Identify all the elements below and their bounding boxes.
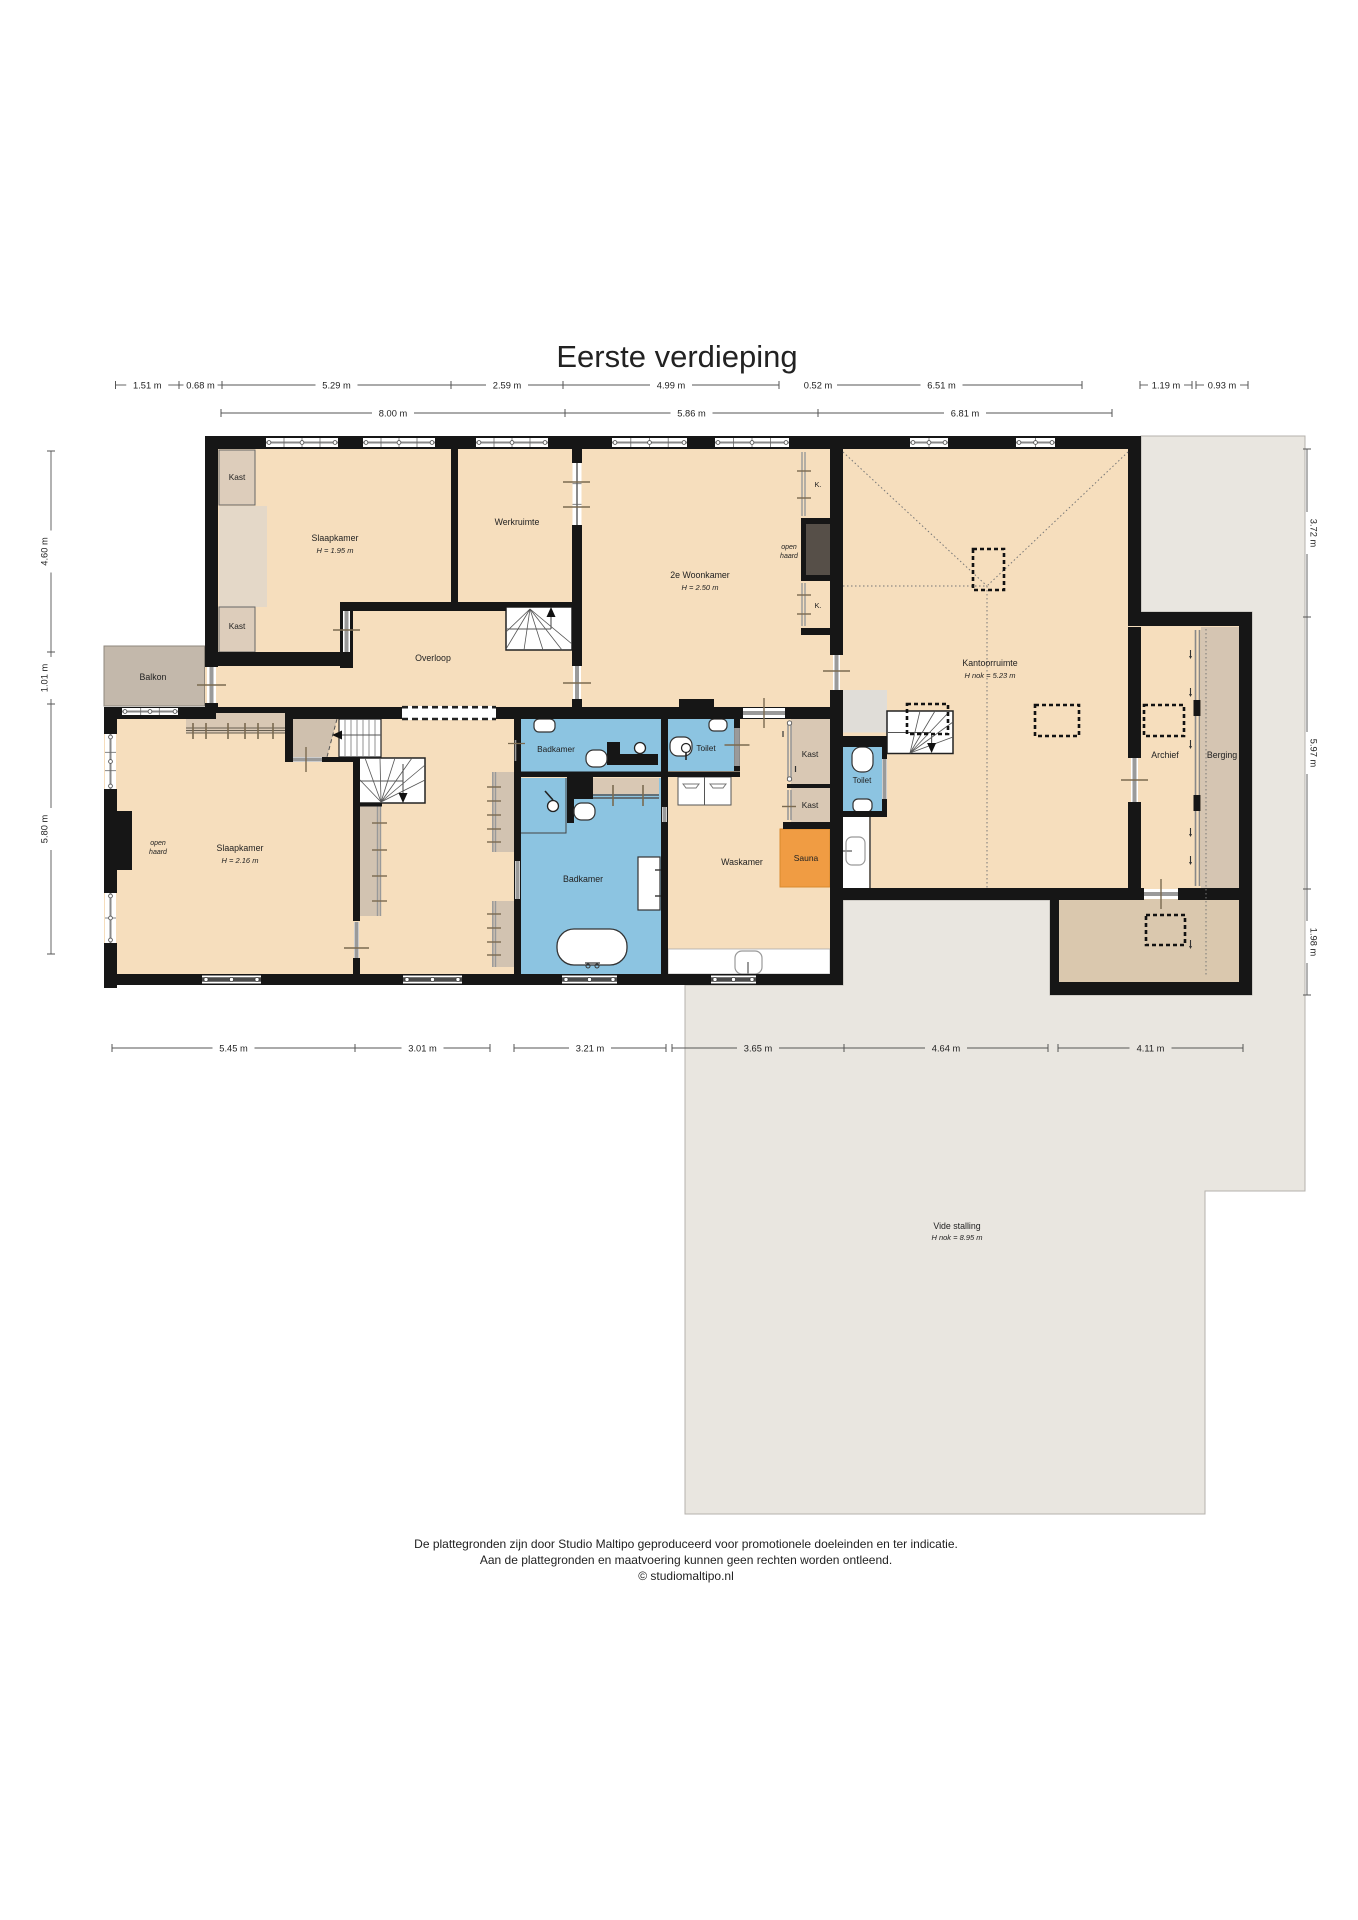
svg-text:Aan de plattegronden en maatvo: Aan de plattegronden en maatvoering kunn… <box>480 1553 892 1567</box>
svg-text:Slaapkamer: Slaapkamer <box>217 843 264 853</box>
svg-text:Kast: Kast <box>802 749 819 759</box>
svg-text:0.52 m: 0.52 m <box>804 380 833 390</box>
svg-text:K.: K. <box>814 480 821 489</box>
svg-text:6.51 m: 6.51 m <box>927 380 956 390</box>
svg-text:1.19 m: 1.19 m <box>1152 380 1181 390</box>
svg-text:Balkon: Balkon <box>140 672 167 682</box>
svg-text:1.01 m: 1.01 m <box>39 664 49 693</box>
svg-text:1.98 m: 1.98 m <box>1309 928 1319 957</box>
svg-text:Kast: Kast <box>229 621 246 631</box>
svg-text:8.00 m: 8.00 m <box>379 408 408 418</box>
svg-text:Waskamer: Waskamer <box>721 857 763 867</box>
svg-text:6.81 m: 6.81 m <box>951 408 980 418</box>
svg-text:Overloop: Overloop <box>415 653 451 663</box>
svg-text:2.59 m: 2.59 m <box>493 380 522 390</box>
svg-text:Badkamer: Badkamer <box>563 874 603 884</box>
svg-text:5.97 m: 5.97 m <box>1309 739 1319 768</box>
svg-text:haard: haard <box>149 849 168 856</box>
svg-text:K.: K. <box>814 601 821 610</box>
svg-text:Sauna: Sauna <box>794 853 819 863</box>
svg-text:Kantoorruimte: Kantoorruimte <box>962 658 1017 668</box>
svg-text:haard: haard <box>780 553 799 560</box>
svg-text:4.11 m: 4.11 m <box>1137 1043 1165 1053</box>
svg-text:4.64 m: 4.64 m <box>932 1043 961 1053</box>
svg-text:H = 2.50 m: H = 2.50 m <box>682 583 719 592</box>
svg-text:3.72 m: 3.72 m <box>1309 519 1319 548</box>
svg-text:Slaapkamer: Slaapkamer <box>312 533 359 543</box>
svg-text:4.99 m: 4.99 m <box>657 380 686 390</box>
svg-text:0.93 m: 0.93 m <box>1208 380 1237 390</box>
svg-text:De plattegronden zijn door Stu: De plattegronden zijn door Studio Maltip… <box>414 1537 958 1551</box>
svg-text:Archief: Archief <box>1151 750 1179 760</box>
svg-text:Vide stalling: Vide stalling <box>933 1221 980 1231</box>
svg-text:H = 2.16 m: H = 2.16 m <box>222 856 259 865</box>
svg-text:3.21 m: 3.21 m <box>576 1043 605 1053</box>
svg-text:Toilet: Toilet <box>853 776 872 785</box>
svg-text:H nok = 5.23 m: H nok = 5.23 m <box>964 671 1015 680</box>
svg-text:3.01 m: 3.01 m <box>408 1043 437 1053</box>
svg-text:Kast: Kast <box>802 800 819 810</box>
svg-text:2e Woonkamer: 2e Woonkamer <box>670 570 730 580</box>
svg-text:5.29 m: 5.29 m <box>322 380 351 390</box>
svg-text:0.68 m: 0.68 m <box>186 380 215 390</box>
svg-text:H = 1.95 m: H = 1.95 m <box>317 546 354 555</box>
svg-text:© studiomaltipo.nl: © studiomaltipo.nl <box>638 1569 734 1583</box>
svg-text:Kast: Kast <box>229 472 246 482</box>
svg-text:open: open <box>781 544 797 551</box>
svg-text:H nok = 8.95 m: H nok = 8.95 m <box>931 1233 982 1242</box>
svg-text:5.45 m: 5.45 m <box>219 1043 248 1053</box>
svg-text:Eerste verdieping: Eerste verdieping <box>556 339 797 374</box>
svg-text:Berging: Berging <box>1207 750 1237 760</box>
svg-text:4.60 m: 4.60 m <box>39 537 49 566</box>
svg-text:open: open <box>150 840 166 847</box>
svg-text:5.80 m: 5.80 m <box>39 815 49 844</box>
svg-text:3.65 m: 3.65 m <box>744 1043 773 1053</box>
svg-text:5.86 m: 5.86 m <box>677 408 706 418</box>
svg-text:1.51 m: 1.51 m <box>133 380 162 390</box>
svg-text:Toilet: Toilet <box>696 743 716 753</box>
svg-text:Werkruimte: Werkruimte <box>495 517 540 527</box>
svg-text:Badkamer: Badkamer <box>537 744 575 754</box>
